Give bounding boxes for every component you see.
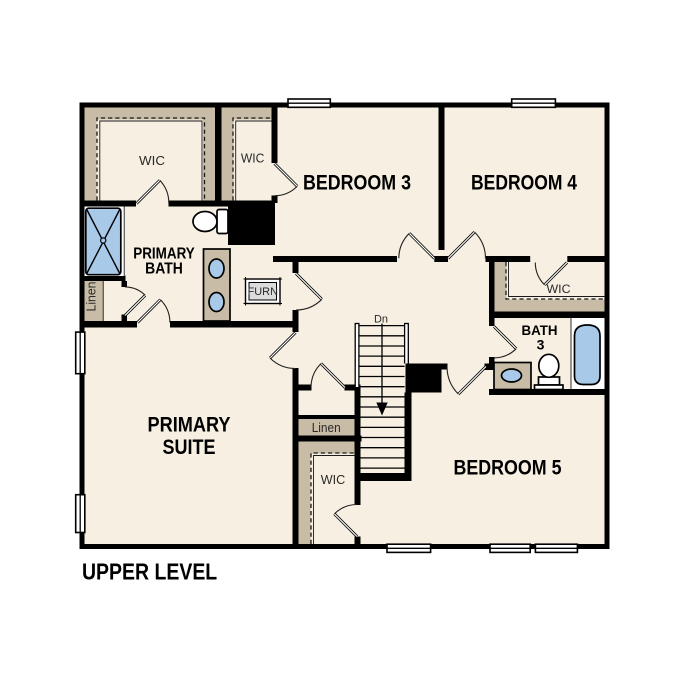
svg-text:WIC: WIC	[547, 282, 571, 296]
svg-text:Linen: Linen	[312, 421, 341, 435]
svg-text:SUITE: SUITE	[163, 436, 216, 459]
svg-text:3: 3	[537, 336, 545, 352]
svg-text:Linen: Linen	[85, 281, 99, 311]
svg-text:WIC: WIC	[241, 152, 265, 166]
svg-text:BATH: BATH	[145, 261, 183, 278]
svg-text:WIC: WIC	[139, 153, 165, 168]
svg-text:Dn: Dn	[374, 314, 388, 326]
svg-text:WIC: WIC	[321, 472, 346, 487]
svg-text:FURN: FURN	[248, 286, 278, 298]
svg-text:BEDROOM 3: BEDROOM 3	[303, 172, 411, 195]
svg-text:PRIMARY: PRIMARY	[148, 414, 231, 437]
svg-text:BEDROOM 5: BEDROOM 5	[454, 456, 562, 479]
svg-text:BEDROOM 4: BEDROOM 4	[471, 172, 577, 195]
svg-text:UPPER LEVEL: UPPER LEVEL	[82, 559, 217, 585]
